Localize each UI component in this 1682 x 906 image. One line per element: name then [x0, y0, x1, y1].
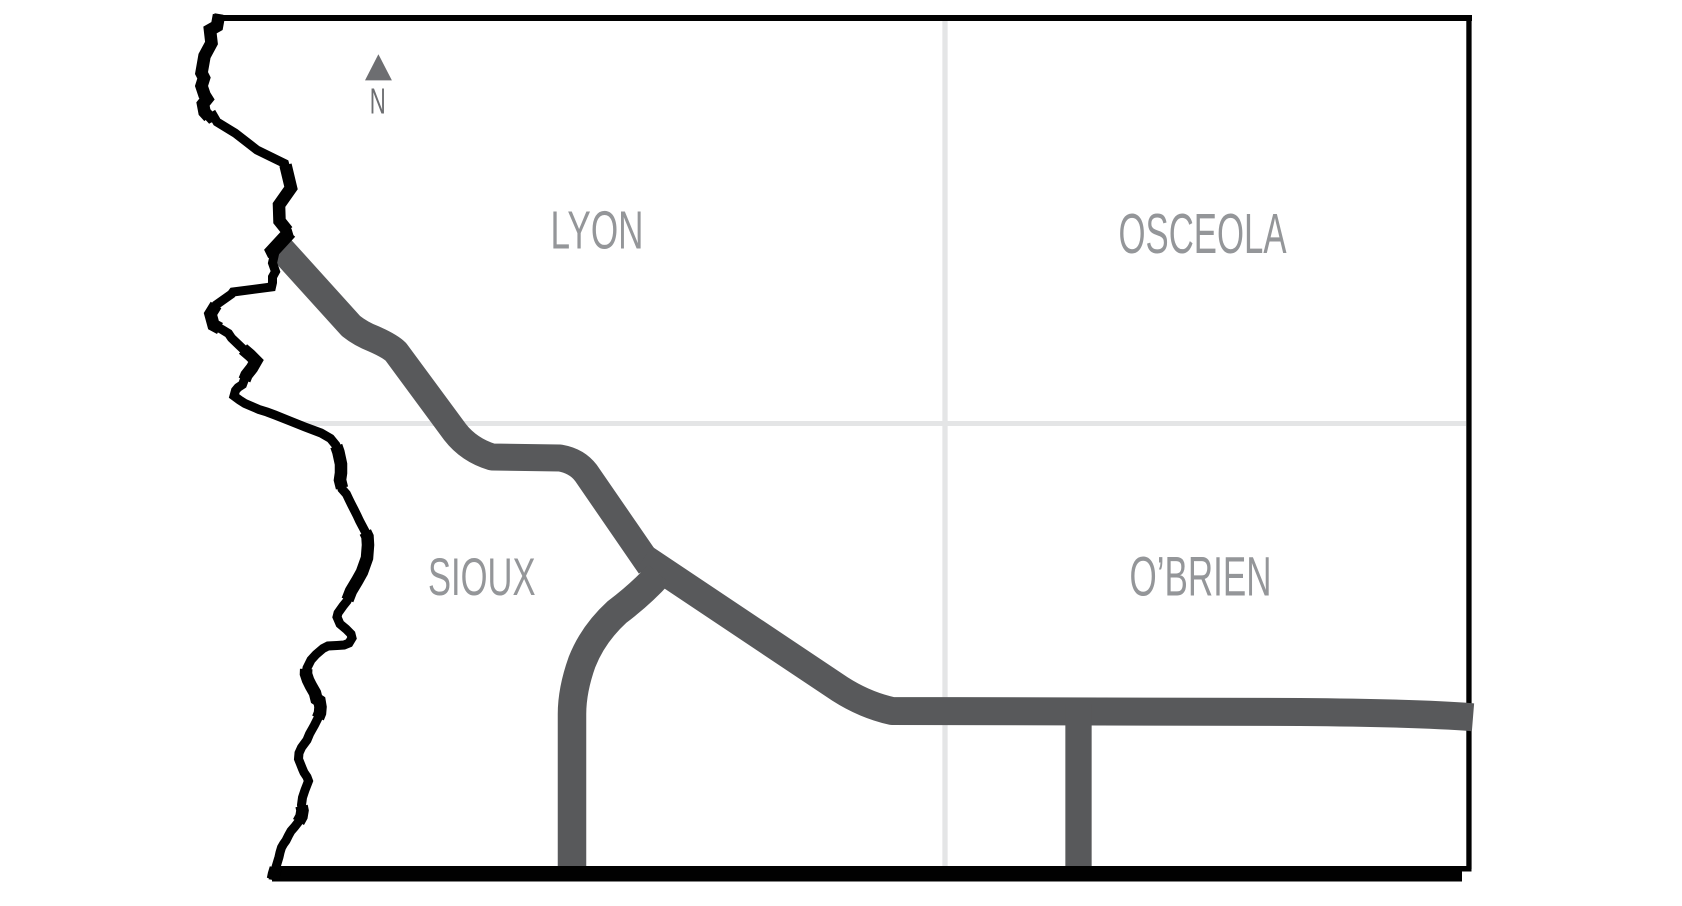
svg-text:OSCEOLA: OSCEOLA: [1119, 202, 1287, 266]
svg-text:SIOUX: SIOUX: [428, 548, 536, 607]
svg-text:N: N: [370, 80, 386, 121]
svg-text:LYON: LYON: [551, 201, 644, 261]
svg-text:O’BRIEN: O’BRIEN: [1130, 545, 1272, 608]
